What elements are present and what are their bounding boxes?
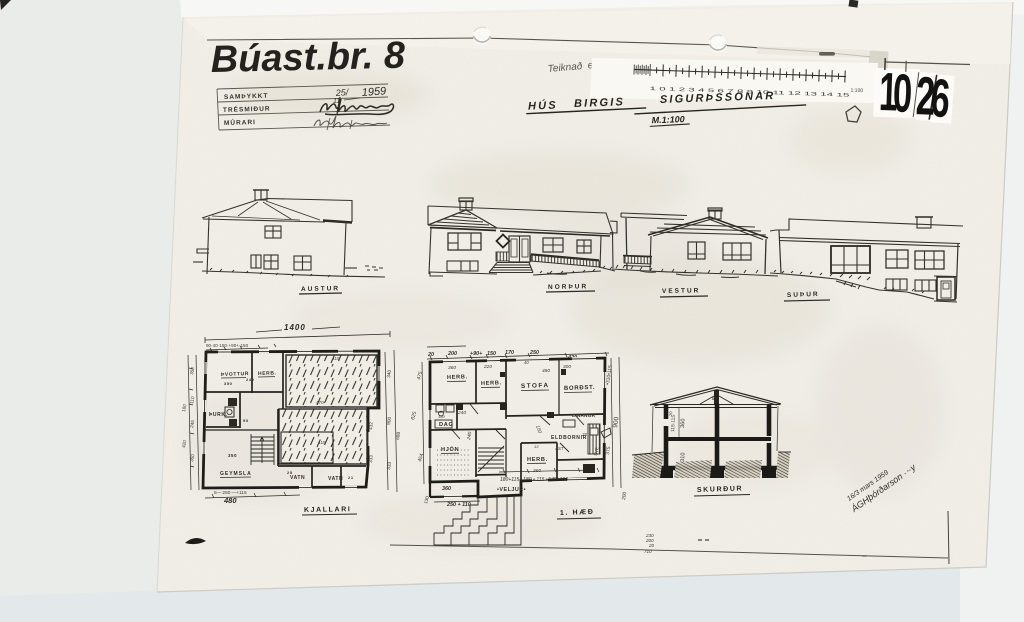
- svg-text:180+115+ 180 + 115 +140+100: 180+115+ 180 + 115 +140+100: [500, 477, 568, 483]
- svg-text:1400: 1400: [284, 323, 306, 332]
- svg-text:HJÓN: HJÓN: [441, 445, 459, 453]
- svg-text:13: 13: [534, 444, 539, 449]
- svg-text:20: 20: [648, 543, 655, 548]
- svg-text:170: 170: [505, 350, 514, 356]
- svg-text:40: 40: [524, 360, 529, 365]
- svg-text:900: 900: [386, 416, 393, 425]
- svg-text:360: 360: [442, 486, 451, 492]
- svg-text:340: 340: [386, 369, 393, 378]
- svg-text:240: 240: [246, 377, 255, 382]
- svg-text:HERB.: HERB.: [447, 374, 468, 381]
- svg-text:SUÞUR: SUÞUR: [787, 291, 820, 299]
- svg-text:+90+: +90+: [470, 351, 483, 357]
- svg-text:SAMÞYKKT: SAMÞYKKT: [224, 93, 269, 101]
- svg-text:710: 710: [644, 549, 652, 554]
- svg-text:415: 415: [332, 356, 340, 361]
- svg-text:333: 333: [368, 455, 374, 464]
- svg-text:350: 350: [228, 453, 237, 458]
- svg-text:480: 480: [542, 368, 550, 374]
- svg-text:1:100: 1:100: [850, 88, 863, 94]
- svg-text:200: 200: [447, 351, 457, 357]
- svg-text:HERB.: HERB.: [527, 457, 548, 463]
- svg-text:310: 310: [680, 452, 686, 462]
- svg-text:90: 90: [243, 418, 249, 423]
- svg-text:25: 25: [287, 470, 293, 475]
- svg-text:1959: 1959: [361, 85, 386, 99]
- svg-text:VATN: VATN: [328, 476, 343, 482]
- svg-text:300: 300: [563, 364, 571, 370]
- svg-text:350: 350: [224, 381, 233, 386]
- svg-text:375: 375: [605, 446, 612, 455]
- svg-text:HERB.: HERB.: [258, 370, 277, 377]
- svg-text:1. HÆÐ: 1. HÆÐ: [560, 509, 595, 517]
- svg-text:BIRGIS: BIRGIS: [574, 96, 625, 110]
- svg-text:DAG: DAG: [439, 422, 454, 428]
- svg-text:BORÐST.: BORÐST.: [564, 385, 595, 392]
- svg-text:0: 0: [892, 63, 913, 124]
- svg-text:470: 470: [316, 400, 324, 405]
- svg-text:Búast.br. 8: Búast.br. 8: [210, 35, 406, 81]
- svg-text:115·115: 115·115: [670, 415, 677, 433]
- svg-text:333: 333: [386, 461, 393, 470]
- svg-text:HERB.: HERB.: [481, 380, 502, 387]
- svg-text:Ø: Ø: [712, 396, 716, 401]
- svg-text:ÁST: ÁST: [554, 446, 564, 451]
- svg-text:480: 480: [223, 496, 237, 505]
- svg-text:250 + 110: 250 + 110: [446, 502, 471, 508]
- svg-text:AUSTUR: AUSTUR: [301, 285, 340, 293]
- svg-text:21: 21: [348, 475, 354, 480]
- svg-text:360: 360: [448, 365, 456, 371]
- svg-text:•VELJUR•: •VELJUR•: [497, 487, 526, 493]
- svg-text:432: 432: [368, 422, 374, 431]
- svg-text:VESTUR: VESTUR: [662, 287, 700, 295]
- svg-text:200: 200: [621, 491, 628, 500]
- svg-text:415: 415: [318, 440, 326, 445]
- svg-text:M.1:100: M.1:100: [651, 114, 684, 125]
- svg-text:NORÞUR: NORÞUR: [548, 283, 588, 291]
- svg-text:240: 240: [457, 410, 466, 416]
- svg-text:ÞVOTTUR: ÞVOTTUR: [221, 371, 249, 378]
- svg-text:25/: 25/: [334, 87, 350, 98]
- svg-text:ÞURK.: ÞURK.: [209, 412, 228, 418]
- svg-text:25: 25: [581, 432, 587, 437]
- svg-text:220: 220: [483, 364, 492, 370]
- svg-text:VATN: VATN: [290, 475, 305, 481]
- svg-text:EINANGR: EINANGR: [572, 413, 596, 418]
- svg-text:HÚS: HÚS: [528, 99, 558, 113]
- svg-text:360: 360: [680, 418, 686, 428]
- svg-text:KJALLARI: KJALLARI: [304, 506, 352, 514]
- svg-text:90·40·150·+90+·150: 90·40·150·+90+·150: [206, 343, 249, 348]
- svg-text:150: 150: [487, 351, 496, 357]
- svg-text:688: 688: [395, 431, 402, 440]
- svg-text:STOFA: STOFA: [521, 382, 550, 390]
- svg-text:180: 180: [438, 414, 445, 419]
- svg-text:GEYMSLA: GEYMSLA: [220, 471, 252, 477]
